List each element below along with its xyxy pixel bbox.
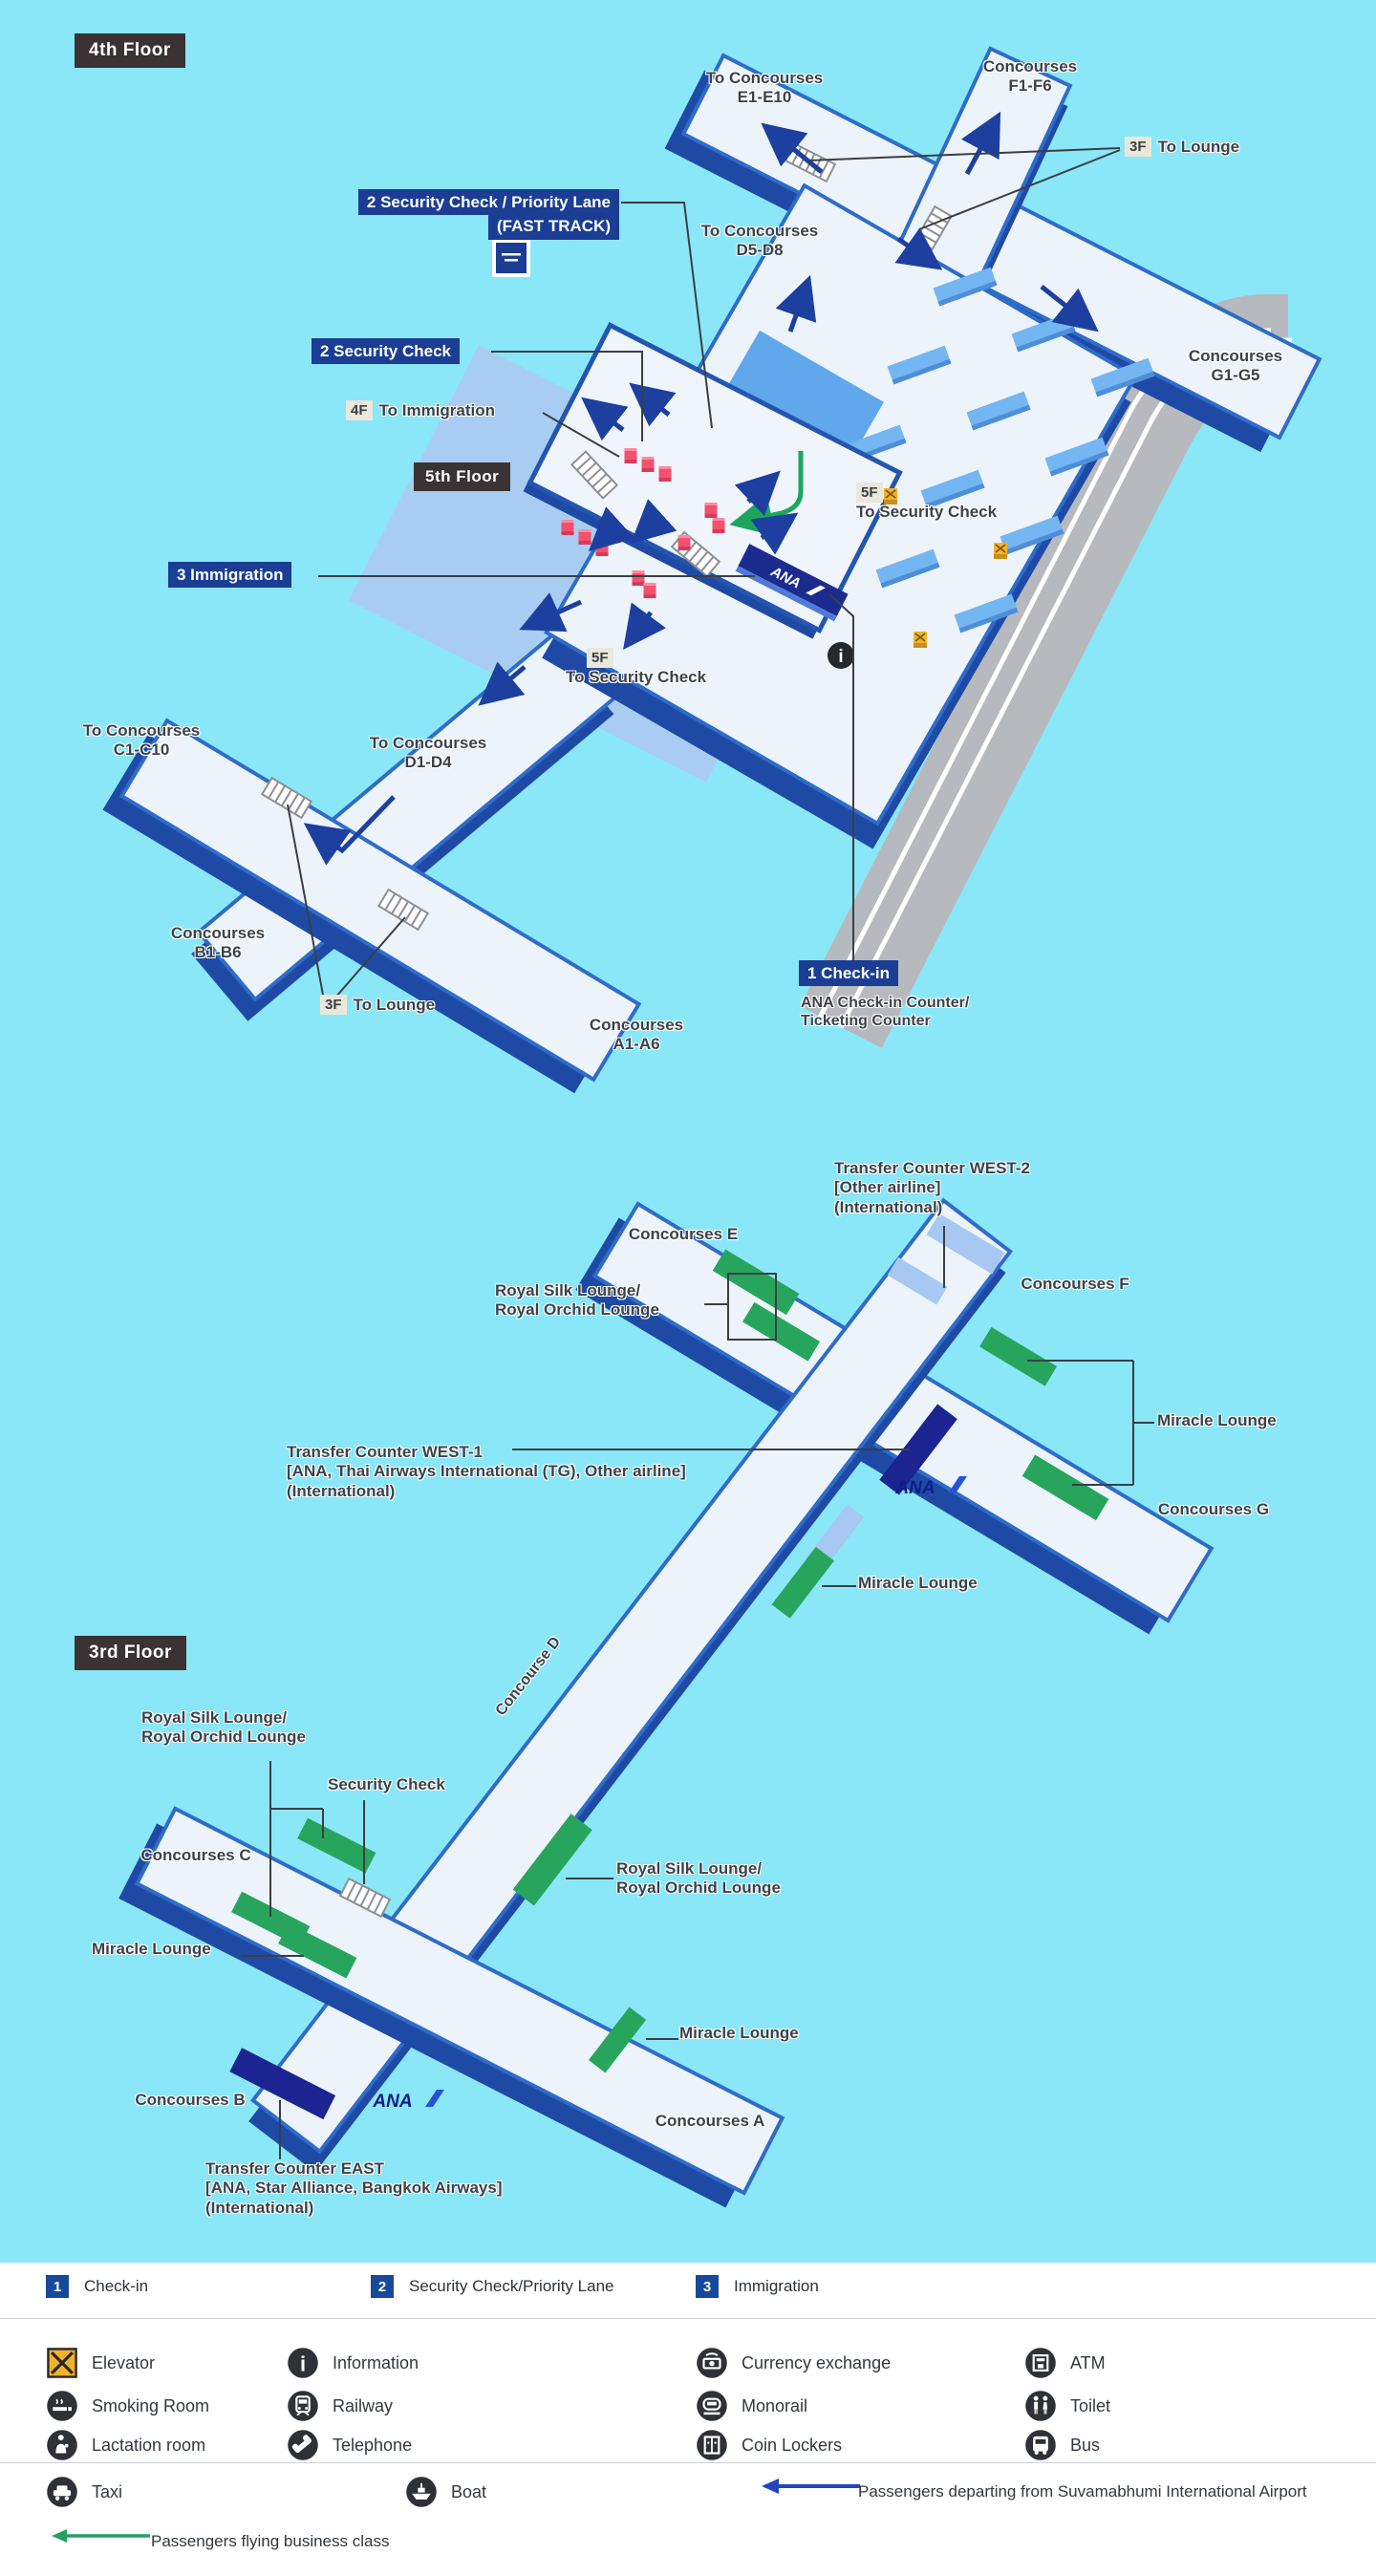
floor-chip-3f-bottom: 3F <box>320 995 347 1015</box>
legend-divider-top <box>0 2318 1376 2319</box>
legend-lactation-room: Lactation room <box>46 2429 205 2461</box>
label-concourses-b-3f: Concourses B <box>104 2091 276 2110</box>
legend-checkin: 1 Check-in <box>46 2275 148 2298</box>
label-to-lounge-top: 3F To Lounge <box>1125 137 1239 157</box>
legend-currency-exchange: Currency exchange <box>696 2347 891 2379</box>
label-miracle-east: Miracle Lounge <box>1157 1411 1277 1430</box>
bus-icon <box>1024 2429 1057 2461</box>
label-concourses-a: Concourses A1-A6 <box>550 1016 722 1055</box>
legend-divider-bottom <box>0 2462 1376 2463</box>
legend-smoking-room: Smoking Room <box>46 2390 209 2422</box>
atm-icon <box>1024 2347 1057 2379</box>
legend-business-label: Passengers flying business class <box>151 2532 389 2551</box>
railway-icon <box>287 2390 319 2422</box>
label-royal-silk-e: Royal Silk Lounge/ Royal Orchid Lounge <box>616 1859 781 1899</box>
telephone-icon <box>287 2429 319 2461</box>
boat-icon <box>405 2476 438 2508</box>
label-transfer-east: Transfer Counter EAST [ANA, Star Allianc… <box>205 2159 503 2218</box>
floor-chip-5f-left: 5F <box>587 648 613 668</box>
legend-elevator: Elevator <box>46 2347 155 2379</box>
taxi-icon <box>46 2476 78 2508</box>
monorail-icon <box>696 2390 728 2422</box>
legend-boat: Boat <box>405 2476 486 2508</box>
label-transfer-west2: Transfer Counter WEST-2 [Other airline] … <box>834 1159 1030 1217</box>
label-concourses-g-3f: Concourses G <box>1128 1500 1300 1519</box>
legend-monorail: Monorail <box>696 2390 807 2422</box>
label-to-concourses-d14: To Concourses D1-D4 <box>342 734 514 773</box>
legend-information: i Information <box>287 2347 419 2379</box>
floor-badge-5f: 5th Floor <box>414 462 510 491</box>
label-immigration: 3 Immigration <box>168 562 291 588</box>
label-to-security-right: 5F To Security Check <box>856 483 997 522</box>
svg-text:i: i <box>838 647 843 667</box>
legend-railway: Railway <box>287 2390 393 2422</box>
label-miracle-south: Miracle Lounge <box>679 2024 799 2043</box>
label-to-concourses-e: To Concourses E1-E10 <box>678 69 850 108</box>
floor-chip-4f: 4F <box>346 400 373 420</box>
label-concourses-g: Concourses G1-G5 <box>1150 347 1322 386</box>
legend-departing-label: Passengers departing from Suvamabhumi In… <box>858 2482 1307 2501</box>
security-number-icon: 2 <box>371 2275 394 2298</box>
airport-terminal-map-page: ANA i <box>0 0 1376 2576</box>
floor-chip-3f: 3F <box>1125 137 1151 157</box>
ana-logo-east: ANA <box>372 2090 444 2112</box>
toilet-icon <box>1024 2390 1057 2422</box>
label-security-check-4f: 2 Security Check <box>312 338 460 364</box>
label-concourses-e-3f: Concourses E <box>597 1225 769 1244</box>
label-concourses-f-3f: Concourses F <box>989 1275 1161 1294</box>
label-concourses-a-3f: Concourses A <box>624 2112 796 2131</box>
label-transfer-west1: Transfer Counter WEST-1 [ANA, Thai Airwa… <box>287 1443 686 1501</box>
priority-lane-sign-icon <box>492 239 530 277</box>
svg-text:ANA: ANA <box>372 2092 412 2112</box>
svg-text:i: i <box>300 2352 306 2376</box>
floor-badge-3f: 3rd Floor <box>75 1636 186 1670</box>
legend-atm: ATM <box>1024 2347 1106 2379</box>
label-security-priority: 2 Security Check / Priority Lane (FAST T… <box>304 189 619 240</box>
legend-coin-lockers: Coin Lockers <box>696 2429 842 2461</box>
business-class-arrow-icon <box>50 2524 155 2547</box>
label-security-check-3f: Security Check <box>328 1775 445 1794</box>
label-concourses-c-3f: Concourses C <box>110 1846 282 1865</box>
information-map-icon: i <box>828 642 854 669</box>
label-royal-silk-w: Royal Silk Lounge/ Royal Orchid Lounge <box>141 1708 306 1748</box>
legend-telephone: Telephone <box>287 2429 412 2461</box>
legend-bus: Bus <box>1024 2429 1100 2461</box>
label-to-immigration: 4F To Immigration <box>346 400 495 420</box>
label-to-concourses-d58: To Concourses D5-D8 <box>674 222 846 261</box>
label-to-lounge-bottom: 3F To Lounge <box>320 995 435 1015</box>
label-concourses-b: Concourses B1-B6 <box>132 924 304 963</box>
legend-security: 2 Security Check/Priority Lane <box>371 2275 613 2298</box>
floor-badge-4f: 4th Floor <box>75 33 185 68</box>
label-concourses-f: Concourses F1-F6 <box>944 57 1116 97</box>
label-miracle-west: Miracle Lounge <box>92 1940 211 1959</box>
legend-taxi: Taxi <box>46 2476 122 2508</box>
label-miracle-mid: Miracle Lounge <box>858 1574 978 1593</box>
coin-lockers-icon <box>696 2429 728 2461</box>
smoking-room-icon <box>46 2390 78 2422</box>
map-3f-graphic: ANA ANA <box>118 1200 1212 2207</box>
legend-panel: 1 Check-in 2 Security Check/Priority Lan… <box>0 2263 1376 2576</box>
svg-text:ANA: ANA <box>894 1478 935 1498</box>
legend-immigration: 3 Immigration <box>696 2275 819 2298</box>
information-icon: i <box>287 2347 319 2379</box>
floor-chip-5f-right: 5F <box>856 483 883 503</box>
terminal-maps-graphic: ANA i <box>0 0 1376 2265</box>
lactation-room-icon <box>46 2429 78 2461</box>
label-to-security-left: 5F To Security Check <box>566 648 706 687</box>
currency-exchange-icon <box>696 2347 728 2379</box>
elevator-icon <box>46 2347 78 2379</box>
label-to-concourses-c: To Concourses C1-C10 <box>55 721 227 761</box>
label-checkin: 1 Check-in <box>799 960 898 986</box>
label-royal-silk-nw: Royal Silk Lounge/ Royal Orchid Lounge <box>495 1281 659 1320</box>
label-checkin-desc: ANA Check-in Counter/ Ticketing Counter <box>801 994 969 1030</box>
legend-toilet: Toilet <box>1024 2390 1110 2422</box>
immigration-number-icon: 3 <box>696 2275 719 2298</box>
departing-arrow-icon <box>760 2475 865 2498</box>
checkin-number-icon: 1 <box>46 2275 69 2298</box>
